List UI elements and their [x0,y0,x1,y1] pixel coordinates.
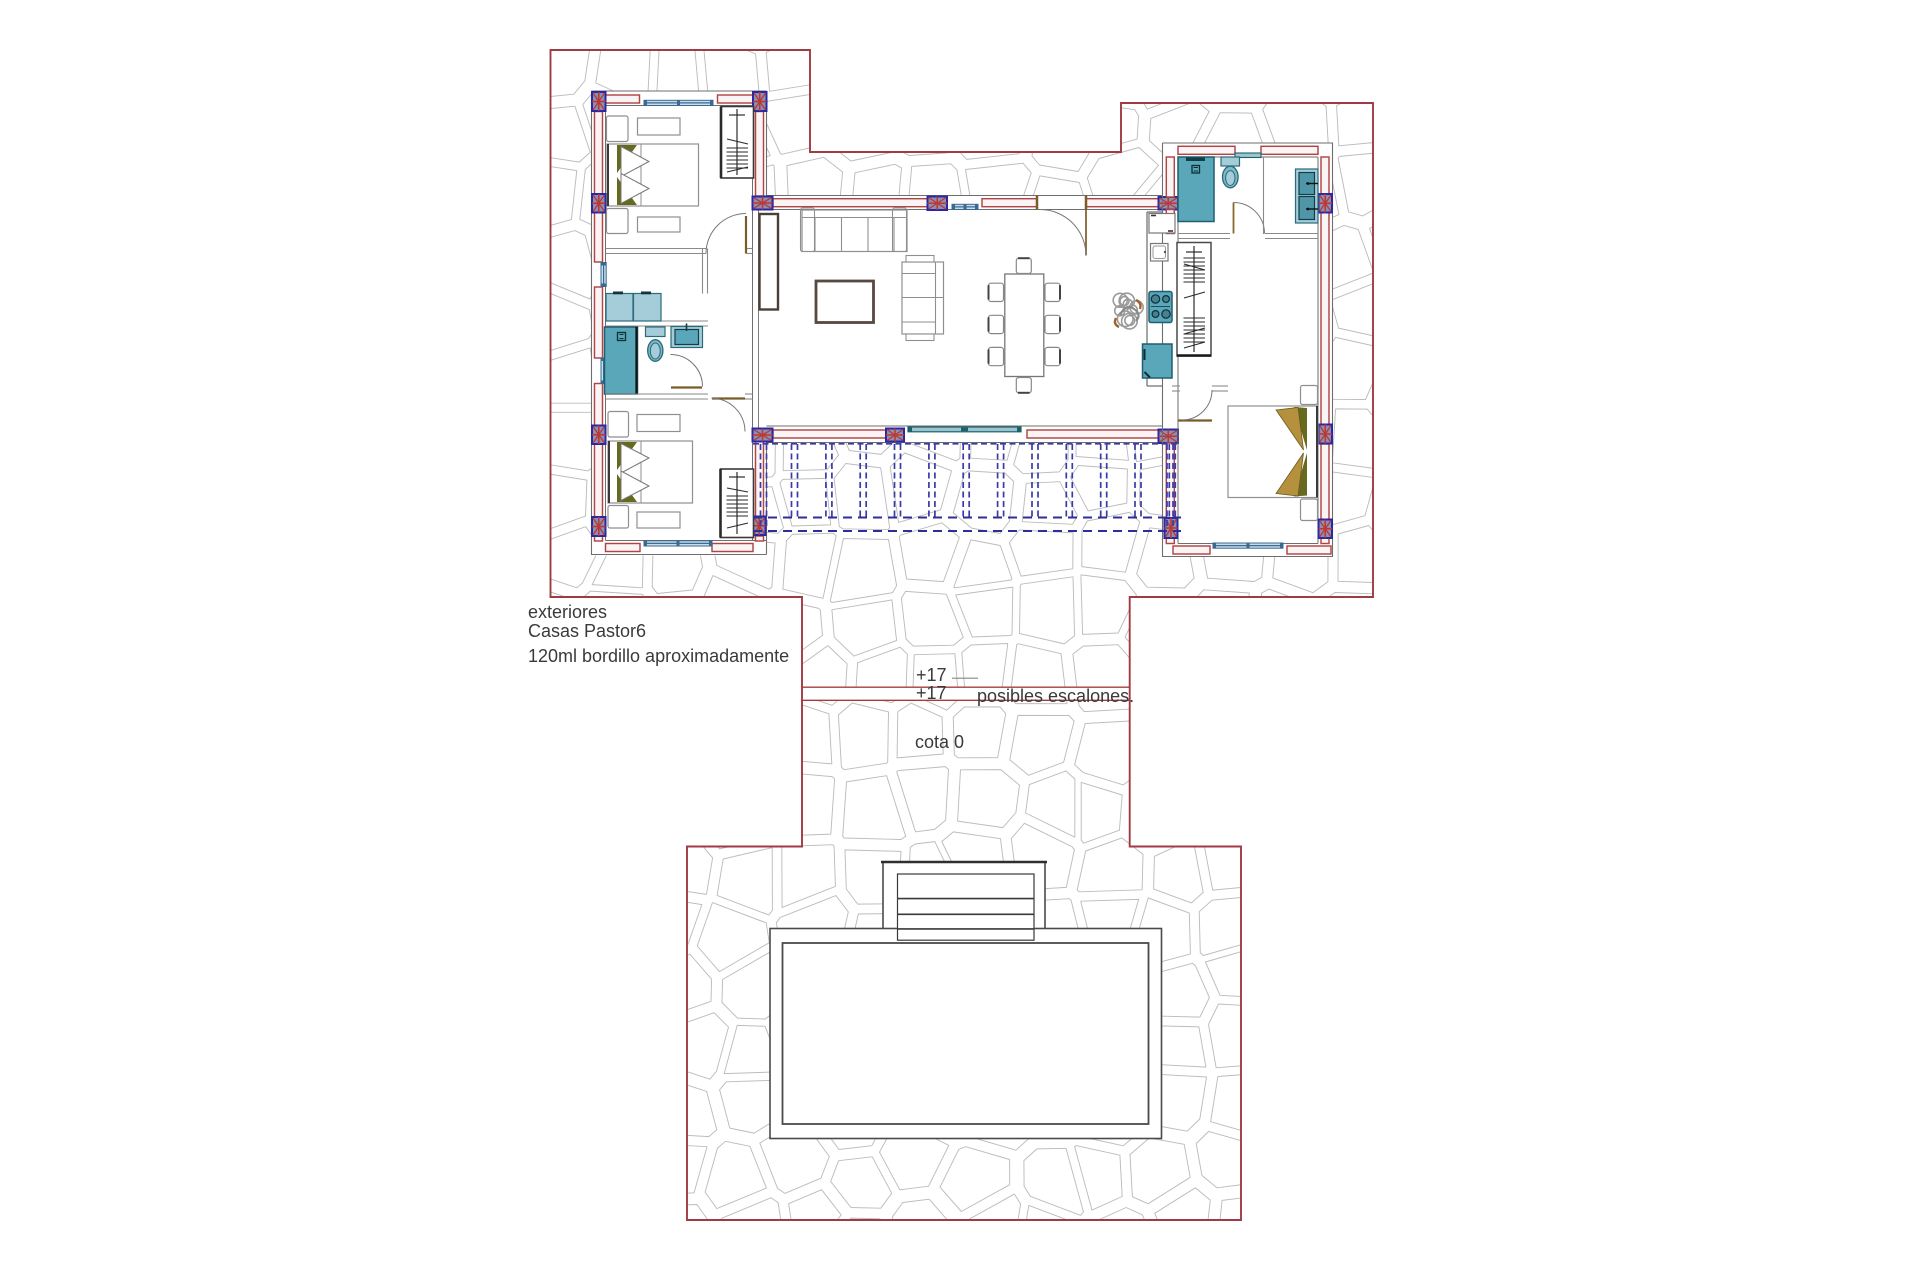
svg-text:posibles escalones.: posibles escalones. [977,686,1134,706]
svg-text:+17: +17 [916,683,947,703]
svg-text:exteriores: exteriores [528,602,607,622]
svg-text:Casas Pastor6: Casas Pastor6 [528,621,646,641]
svg-text:cota 0: cota 0 [915,732,964,752]
svg-text:120ml bordillo aproximadamente: 120ml bordillo aproximadamente [528,646,789,666]
svg-text:+17: +17 [916,665,947,685]
